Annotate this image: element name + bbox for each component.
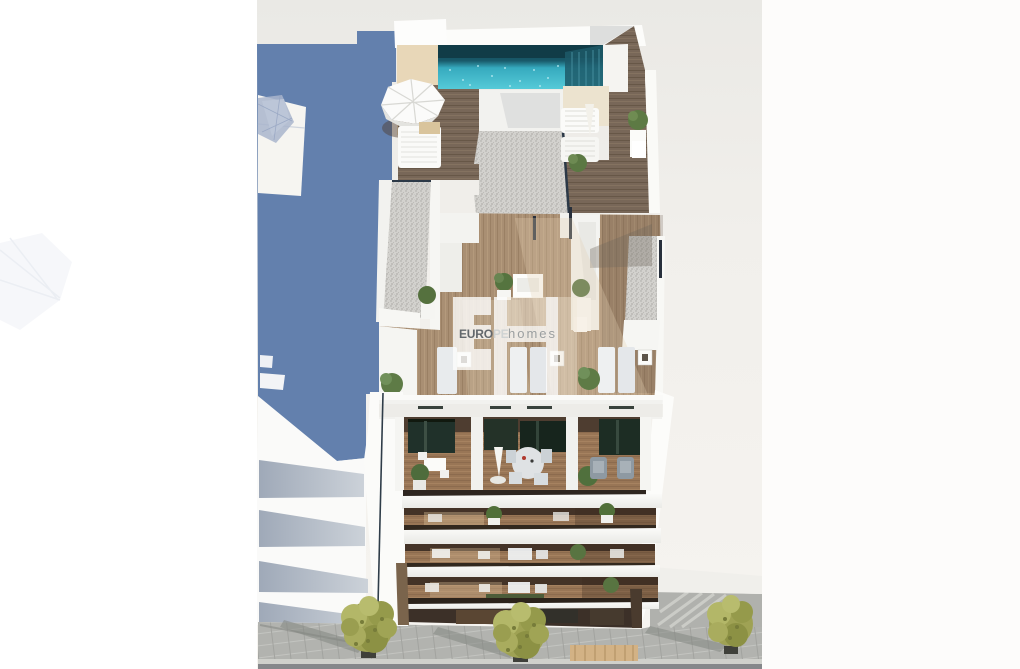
svg-text:homes: homes — [508, 326, 557, 341]
svg-text:EUROPE: EUROPE — [459, 327, 509, 341]
